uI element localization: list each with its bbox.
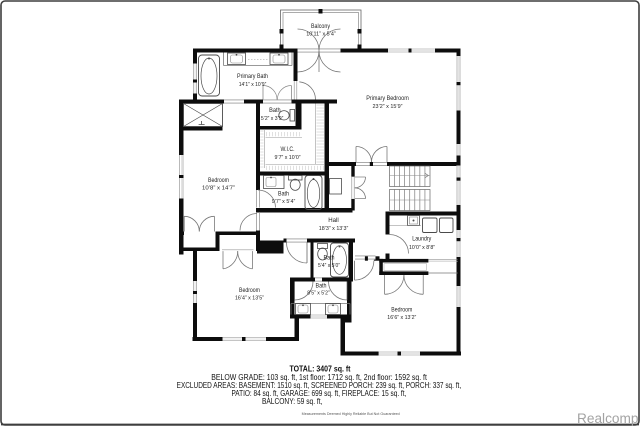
- svg-text:Hall: Hall: [328, 217, 339, 224]
- svg-text:W.I.C.: W.I.C.: [281, 146, 295, 153]
- svg-text:14’1” x 10’9”: 14’1” x 10’9”: [239, 82, 267, 88]
- svg-text:10’11” x 5’4”: 10’11” x 5’4”: [306, 32, 336, 38]
- svg-text:Primary Bedroom: Primary Bedroom: [366, 95, 409, 102]
- svg-text:Bedroom: Bedroom: [208, 177, 229, 184]
- svg-text:Balcony: Balcony: [311, 23, 331, 30]
- svg-text:Bedroom: Bedroom: [391, 307, 412, 314]
- svg-text:16’4” x 13’5”: 16’4” x 13’5”: [235, 295, 264, 301]
- svg-text:10’8” x 14’7”: 10’8” x 14’7”: [202, 185, 235, 191]
- svg-text:16’6” x 13’2”: 16’6” x 13’2”: [387, 315, 416, 321]
- svg-text:Primary Bath: Primary Bath: [237, 73, 268, 80]
- svg-text:5’4” x 5’0”: 5’4” x 5’0”: [318, 263, 340, 269]
- svg-text:9’7” x 5’4”: 9’7” x 5’4”: [272, 199, 296, 205]
- svg-text:Bath: Bath: [278, 191, 289, 198]
- svg-text:18’3” x 13’3”: 18’3” x 13’3”: [319, 226, 349, 232]
- svg-text:Bedroom: Bedroom: [239, 287, 260, 294]
- svg-text:Bath: Bath: [316, 282, 327, 289]
- svg-text:23’2” x 15’9”: 23’2” x 15’9”: [373, 104, 403, 110]
- svg-text:Bath: Bath: [269, 107, 281, 114]
- svg-text:BALCONY: 59 sq. ft,: BALCONY: 59 sq. ft,: [262, 396, 323, 406]
- svg-text:9’7” x 10’0”: 9’7” x 10’0”: [275, 155, 301, 161]
- svg-text:Measurements Deemed Highly Rel: Measurements Deemed Highly Reliable But …: [302, 412, 400, 416]
- svg-text:Laundry: Laundry: [412, 236, 432, 243]
- svg-text:Bath: Bath: [324, 254, 335, 261]
- svg-text:5’2” x 3’9”: 5’2” x 3’9”: [261, 116, 284, 122]
- svg-text:10’0” x 8’8”: 10’0” x 8’8”: [409, 245, 435, 251]
- svg-text:8’5” x 5’2”: 8’5” x 5’2”: [307, 290, 330, 296]
- svg-text:Realcomp: Realcomp: [577, 411, 639, 426]
